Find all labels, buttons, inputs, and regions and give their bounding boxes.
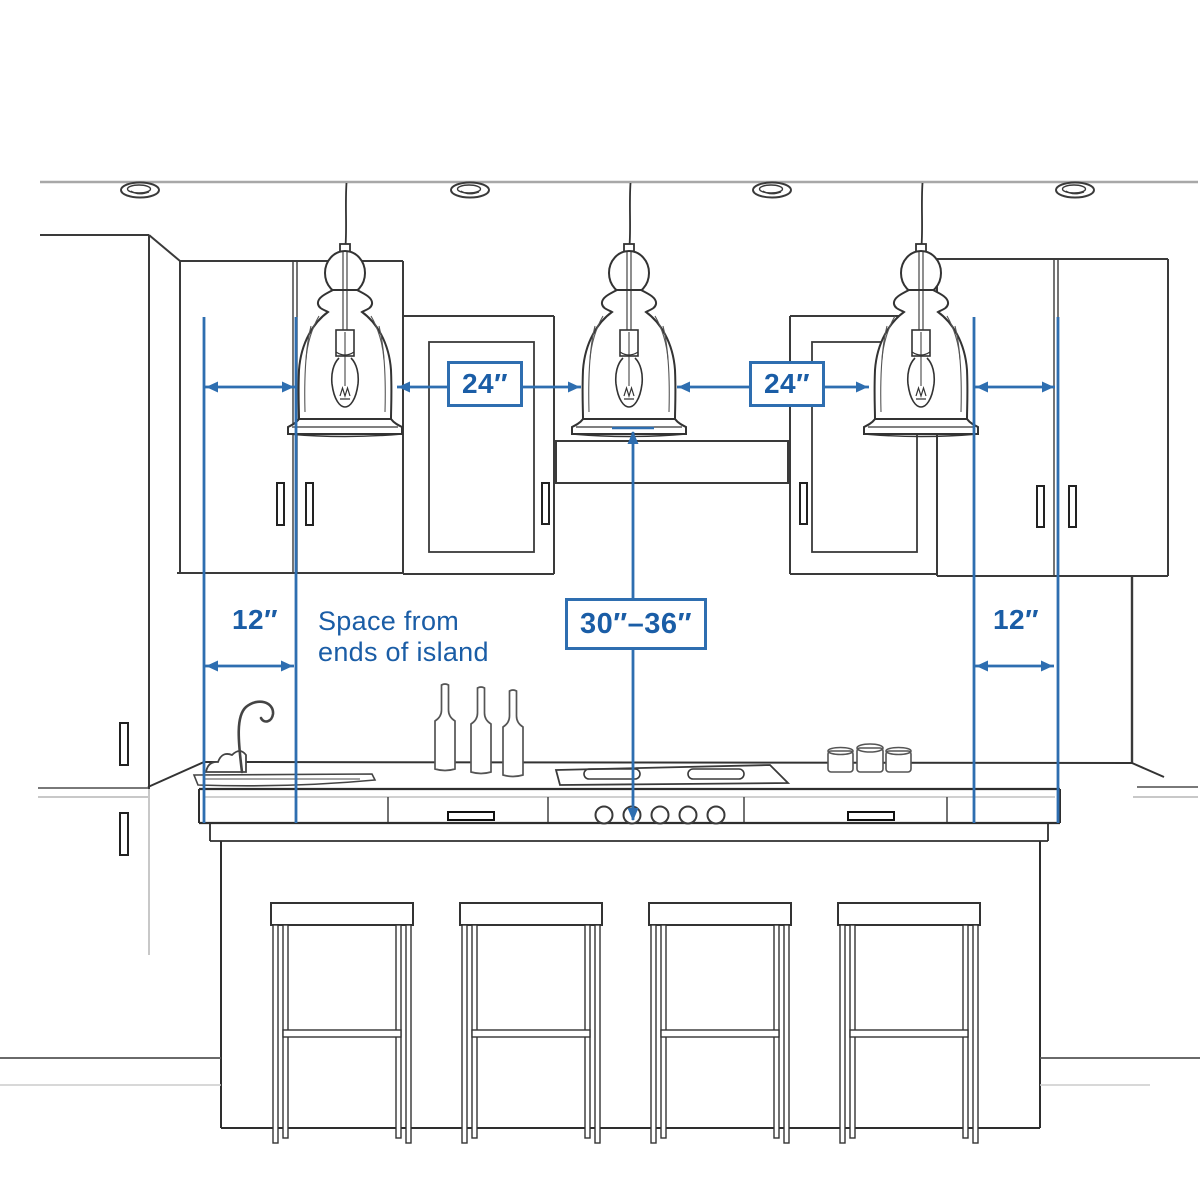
- knob-icon: [680, 807, 697, 824]
- range-hood: [556, 441, 788, 483]
- island-end-left-label: 12″: [210, 604, 300, 636]
- knob-icon: [596, 807, 613, 824]
- kitchen-island: [199, 789, 1060, 1128]
- recessed-light-icon: [451, 183, 489, 198]
- recessed-light-icon: [1056, 183, 1094, 198]
- knob-icon: [652, 807, 669, 824]
- bar-stools: [271, 903, 980, 1143]
- recessed-lights: [121, 183, 1094, 198]
- sink: [194, 774, 375, 786]
- pendant-gap-right-label: 24″: [749, 361, 825, 407]
- cabinet-handle-icon: [277, 483, 284, 525]
- island-end-note-line1: Space from: [318, 606, 489, 637]
- recessed-light-icon: [753, 183, 791, 198]
- cabinet-handle-icon: [1037, 486, 1044, 527]
- wine-bottles: [435, 684, 523, 777]
- upper-cabinets-right: [790, 259, 1168, 763]
- cabinet-handle-icon: [306, 483, 313, 525]
- cooktop: [556, 765, 788, 785]
- bar-stool: [271, 903, 413, 1143]
- bottle-icon: [435, 684, 455, 771]
- wall-left: [40, 235, 180, 955]
- counter-to-pendant-label: 30″–36″: [565, 598, 707, 650]
- cabinet-handle-icon: [120, 813, 128, 855]
- island-end-note-line2: ends of island: [318, 637, 489, 668]
- pendant-gap-left-label: 24″: [447, 361, 523, 407]
- cabinet-handle-icon: [120, 723, 128, 765]
- diagram-canvas: 24″ 24″ 30″–36″ 12″ 12″ Space from ends …: [0, 0, 1200, 1200]
- pendant-light-icon: [288, 183, 402, 437]
- cabinet-handle-icon: [542, 483, 549, 524]
- counter-jars: [828, 744, 911, 772]
- island-end-right-label: 12″: [971, 604, 1061, 636]
- cooktop-knobs: [596, 807, 725, 824]
- cabinet-handle-icon: [1069, 486, 1076, 527]
- bar-stool: [649, 903, 791, 1143]
- pendant-light-icon: [864, 183, 978, 437]
- bar-stool: [838, 903, 980, 1143]
- drawer-handle-icon: [848, 812, 894, 820]
- drawer-handle-icon: [448, 812, 494, 820]
- pendant-light-icon: [572, 183, 686, 437]
- island-end-note: Space from ends of island: [318, 606, 489, 668]
- bottle-icon: [471, 687, 491, 774]
- bar-stool: [460, 903, 602, 1143]
- bottle-icon: [503, 690, 523, 777]
- cabinet-handle-icon: [800, 483, 807, 524]
- pendant-lights: [288, 183, 978, 437]
- recessed-light-icon: [121, 183, 159, 198]
- knob-icon: [708, 807, 725, 824]
